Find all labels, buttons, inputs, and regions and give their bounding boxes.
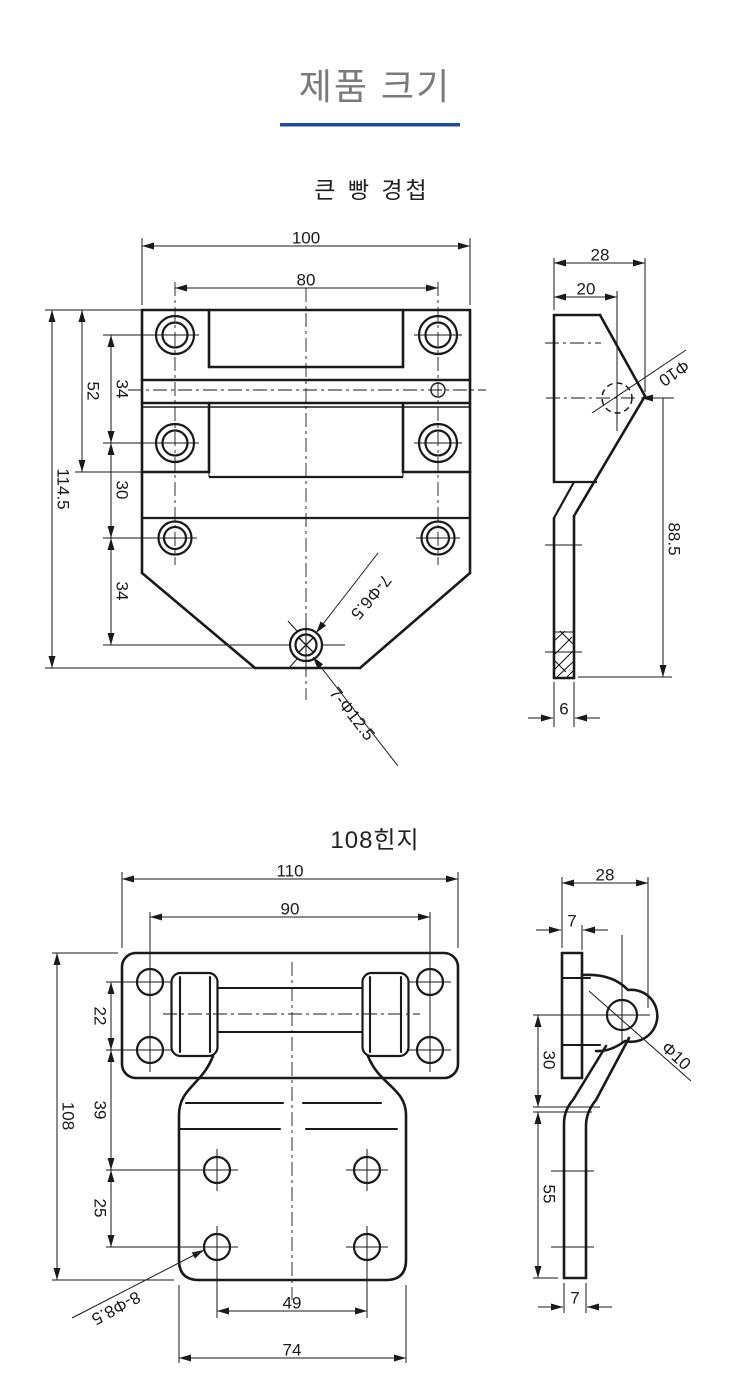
drawing1-side-outline bbox=[554, 315, 645, 678]
dim-d1-note-small: 7-Φ6.5 bbox=[347, 571, 395, 623]
dim-d1-upper-height: 52 bbox=[84, 382, 103, 401]
dim-d2-thickness-top: 7 bbox=[567, 912, 576, 931]
dim-d1-pin-offset: 20 bbox=[577, 280, 596, 299]
dim-d2-depth: 28 bbox=[596, 866, 615, 885]
drawing1-title: 큰 빵 경첩 bbox=[314, 177, 429, 203]
drawing1-front-holes bbox=[156, 316, 457, 669]
drawing1-side-pin bbox=[545, 291, 636, 652]
product-size-sheet: 제품 크기 큰 빵 경첩 108힌지 bbox=[0, 0, 750, 1394]
dim-d2-hole-span: 90 bbox=[281, 900, 300, 919]
dim-d1-thickness: 6 bbox=[559, 700, 568, 719]
dim-d2-leg-height: 55 bbox=[540, 1185, 559, 1204]
dim-d2-upper-height: 30 bbox=[540, 1051, 559, 1070]
dim-d1-gap2: 30 bbox=[113, 481, 132, 500]
dim-d1-depth: 28 bbox=[591, 246, 610, 265]
dim-d2-gap2: 39 bbox=[91, 1101, 110, 1120]
dim-d1-gap1: 34 bbox=[113, 380, 132, 399]
dim-d1-width: 100 bbox=[292, 229, 320, 248]
dim-d1-gap3: 34 bbox=[113, 582, 132, 601]
drawing2-front-outline bbox=[122, 953, 458, 1280]
drawing1-side-section-hatch bbox=[554, 631, 574, 677]
dim-d2-gap1: 22 bbox=[91, 1007, 110, 1026]
dim-d1-hole-span: 80 bbox=[297, 271, 316, 290]
page-title: 제품 크기 bbox=[299, 66, 451, 107]
dim-d2-pin-dia: Φ10 bbox=[658, 1038, 695, 1074]
drawing2-front-extensions bbox=[52, 872, 458, 1363]
dim-d2-width: 110 bbox=[276, 862, 303, 881]
dim-d1-total-height: 114.5 bbox=[54, 468, 73, 509]
drawing2-front-holes bbox=[137, 969, 443, 1260]
dim-d1-pin-dia: Φ10 bbox=[655, 356, 693, 390]
dim-d2-note: 8-Φ8.5 bbox=[88, 1287, 143, 1328]
dim-d2-total-height: 108 bbox=[59, 1102, 78, 1130]
dim-d2-bottom-span: 49 bbox=[283, 1294, 302, 1313]
drawing2-title: 108힌지 bbox=[330, 827, 419, 854]
drawing2-front-dimensions: 110 90 22 39 25 108 49 74 8-Φ8.5 bbox=[57, 862, 458, 1360]
drawing2-side-outline bbox=[562, 953, 657, 1278]
dim-d1-note-large: 7-Φ12.5 bbox=[325, 684, 378, 744]
dim-d1-leg-height: 88.5 bbox=[665, 522, 684, 555]
drawing1-front-extensions bbox=[45, 238, 470, 668]
dim-d2-thickness-bottom: 7 bbox=[570, 1289, 579, 1308]
dim-d2-bottom-width: 74 bbox=[283, 1341, 302, 1360]
title-underline bbox=[280, 123, 460, 127]
drawing2-side-dimensions: 28 7 Φ10 30 55 7 bbox=[533, 866, 694, 1314]
technical-drawing: 제품 크기 큰 빵 경첩 108힌지 bbox=[0, 0, 750, 1394]
dim-d2-gap3: 25 bbox=[91, 1199, 110, 1218]
